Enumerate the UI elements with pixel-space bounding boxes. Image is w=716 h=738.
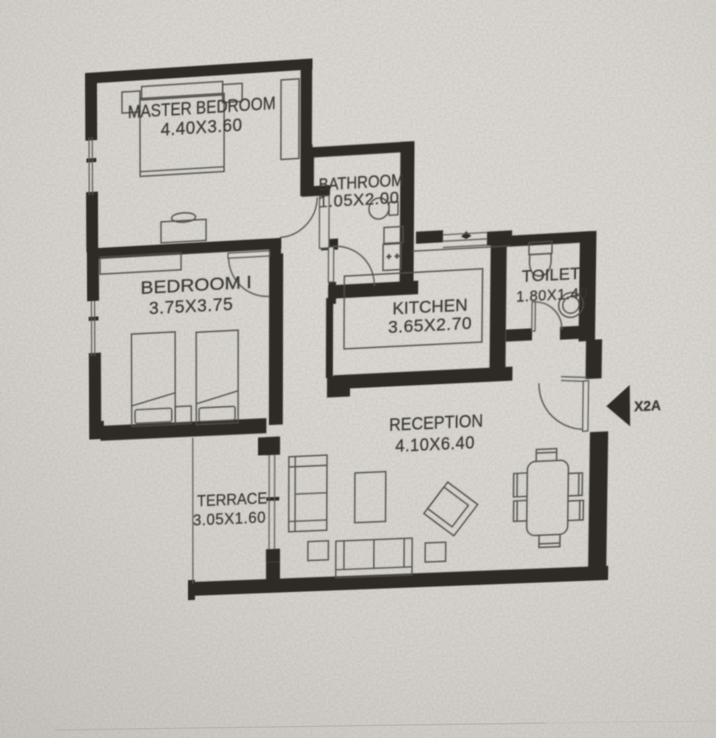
svg-text:4.40X3.60: 4.40X3.60 xyxy=(161,114,243,139)
svg-text:3.65X2.70: 3.65X2.70 xyxy=(388,314,472,338)
svg-text:4.10X6.40: 4.10X6.40 xyxy=(395,432,475,456)
svg-text:TERRACE: TERRACE xyxy=(197,489,267,510)
svg-text:3.75X3.75: 3.75X3.75 xyxy=(149,294,233,319)
svg-text:3.05X1.60: 3.05X1.60 xyxy=(193,510,266,530)
svg-text:TOILET: TOILET xyxy=(522,264,581,286)
svg-text:BEDROOM I: BEDROOM I xyxy=(141,272,252,298)
svg-text:1.80X1.40: 1.80X1.40 xyxy=(516,285,588,306)
svg-text:X2A: X2A xyxy=(634,398,661,415)
svg-text:1.05X2.00: 1.05X2.00 xyxy=(319,188,400,211)
